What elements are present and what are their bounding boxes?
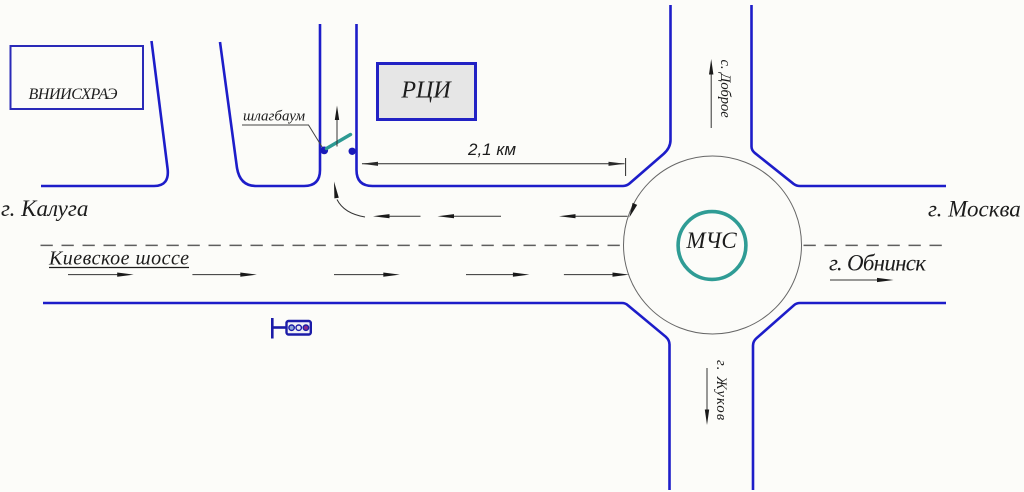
svg-text:шлагбаум: шлагбаум	[243, 109, 306, 125]
svg-text:г. Калуга: г. Калуга	[1, 196, 88, 221]
svg-text:г. Москва: г. Москва	[928, 196, 1021, 221]
svg-text:с. Доброе: с. Доброе	[717, 60, 733, 119]
svg-text:2,1 км: 2,1 км	[467, 140, 516, 159]
svg-text:Киевское шоссе: Киевское шоссе	[48, 248, 189, 270]
svg-text:ВНИИСХРАЭ: ВНИИСХРАЭ	[29, 86, 119, 103]
svg-text:г. Обнинск: г. Обнинск	[829, 251, 926, 276]
svg-text:РЦИ: РЦИ	[400, 78, 452, 104]
svg-text:МЧС: МЧС	[685, 228, 737, 253]
svg-text:г. Жуков: г. Жуков	[713, 360, 729, 421]
